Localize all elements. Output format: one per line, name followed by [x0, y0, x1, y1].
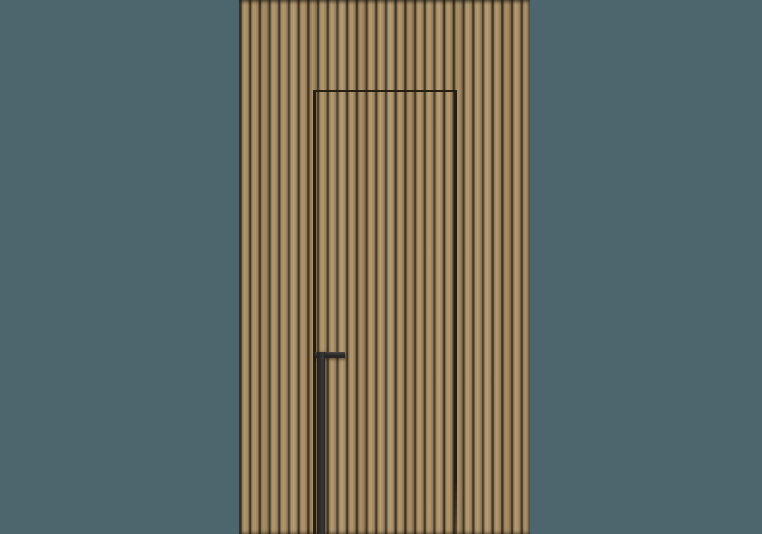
- door-seam-right: [454, 90, 457, 534]
- door-handle-grip-bar: [317, 352, 324, 534]
- scene: [0, 0, 762, 534]
- wood-slat-panel: [239, 0, 530, 534]
- door-seam-left: [313, 90, 316, 534]
- door-seam-top: [313, 90, 457, 93]
